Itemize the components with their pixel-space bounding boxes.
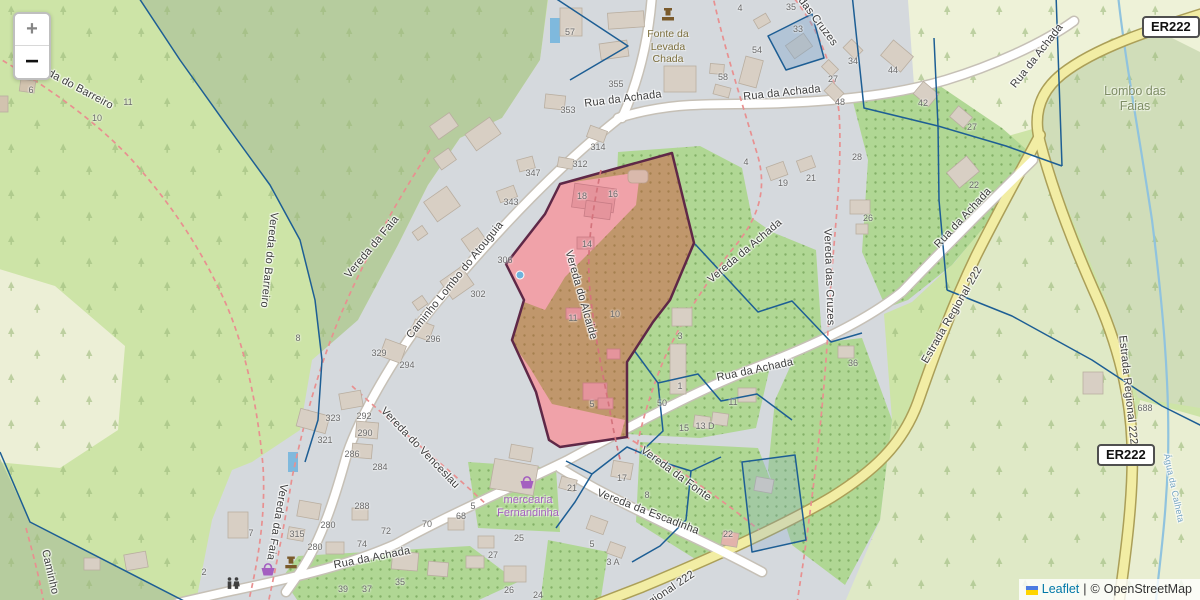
zoom-control: + − (13, 12, 51, 80)
node-marker (516, 271, 524, 279)
leaflet-link[interactable]: Leaflet (1042, 582, 1080, 596)
attribution-bar: Leaflet | © OpenStreetMap (1019, 579, 1200, 600)
route-badge-er222: ER222 (1097, 444, 1155, 466)
route-badge-er222: ER222 (1142, 16, 1200, 38)
copyright-symbol: © (1091, 582, 1100, 596)
zoom-in-button[interactable]: + (15, 14, 49, 46)
ukraine-flag-icon (1026, 586, 1038, 595)
attribution-separator: | (1083, 582, 1086, 596)
map-tiles (0, 0, 1200, 600)
zoom-out-button[interactable]: − (15, 46, 49, 78)
map-canvas[interactable]: 6111057355353314312347343435335854342748… (0, 0, 1200, 600)
openstreetmap-link[interactable]: OpenStreetMap (1104, 582, 1192, 596)
